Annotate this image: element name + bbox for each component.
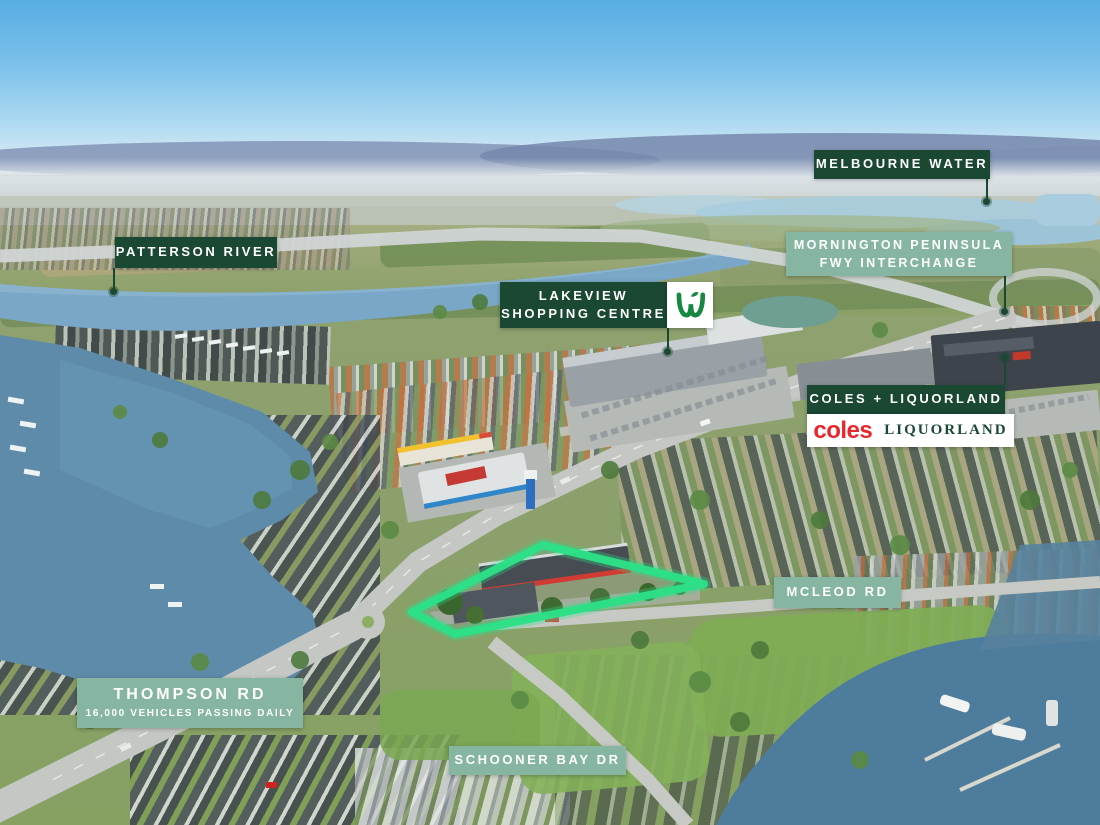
label-thompson-line1: THOMPSON RD — [114, 685, 267, 706]
fwy-interchange-leader-dot — [1001, 308, 1008, 315]
woolworths-logo-icon — [673, 288, 707, 322]
label-mornington-line2: FWY INTERCHANGE — [820, 254, 979, 272]
liquorland-logo: LIQUORLAND — [884, 422, 1007, 439]
melbourne-water-leader-dot — [983, 198, 990, 205]
patterson-river-leader-dot — [110, 288, 117, 295]
label-schooner-bay-dr-text: SCHOONER BAY DR — [454, 751, 620, 769]
label-mornington-line1: MORNINGTON PENINSULA — [794, 236, 1004, 254]
label-coles-liquorland-text: COLES + LIQUORLAND — [809, 390, 1002, 408]
label-coles-liquorland: COLES + LIQUORLAND — [807, 385, 1005, 414]
petrol-station — [397, 432, 556, 523]
label-lakeview-line2: SHOPPING CENTRE — [501, 305, 666, 323]
label-thompson-line2: 16,000 VEHICLES PASSING DAILY — [86, 706, 295, 721]
woolworths-logo-box — [667, 282, 713, 328]
label-patterson-river-text: PATTERSON RIVER — [116, 243, 277, 261]
label-lakeview-shopping-centre: LAKEVIEW SHOPPING CENTRE — [500, 282, 667, 328]
label-mcleod-rd: MCLEOD RD — [774, 577, 901, 608]
lakeview-leader-line — [667, 328, 669, 350]
coles-liquorland-logo-box: coles LIQUORLAND — [807, 414, 1014, 447]
coles-logo: coles — [813, 417, 872, 445]
label-lakeview-line1: LAKEVIEW — [539, 287, 628, 305]
aerial-site-map: MELBOURNE WATER PATTERSON RIVER MORNINGT… — [0, 0, 1100, 825]
coles-leader-dot — [1001, 354, 1008, 361]
label-thompson-rd: THOMPSON RD 16,000 VEHICLES PASSING DAIL… — [77, 678, 303, 728]
label-melbourne-water-text: MELBOURNE WATER — [816, 155, 988, 173]
label-patterson-river: PATTERSON RIVER — [115, 237, 277, 268]
label-melbourne-water: MELBOURNE WATER — [814, 150, 990, 179]
lakeview-leader-dot — [664, 348, 671, 355]
fwy-interchange-leader-line — [1004, 276, 1006, 310]
label-mornington-fwy-interchange: MORNINGTON PENINSULA FWY INTERCHANGE — [786, 232, 1012, 276]
label-schooner-bay-dr: SCHOONER BAY DR — [449, 746, 626, 775]
coles-leader-line — [1004, 358, 1006, 385]
label-mcleod-rd-text: MCLEOD RD — [786, 583, 888, 601]
patterson-river-leader-line — [113, 268, 115, 290]
